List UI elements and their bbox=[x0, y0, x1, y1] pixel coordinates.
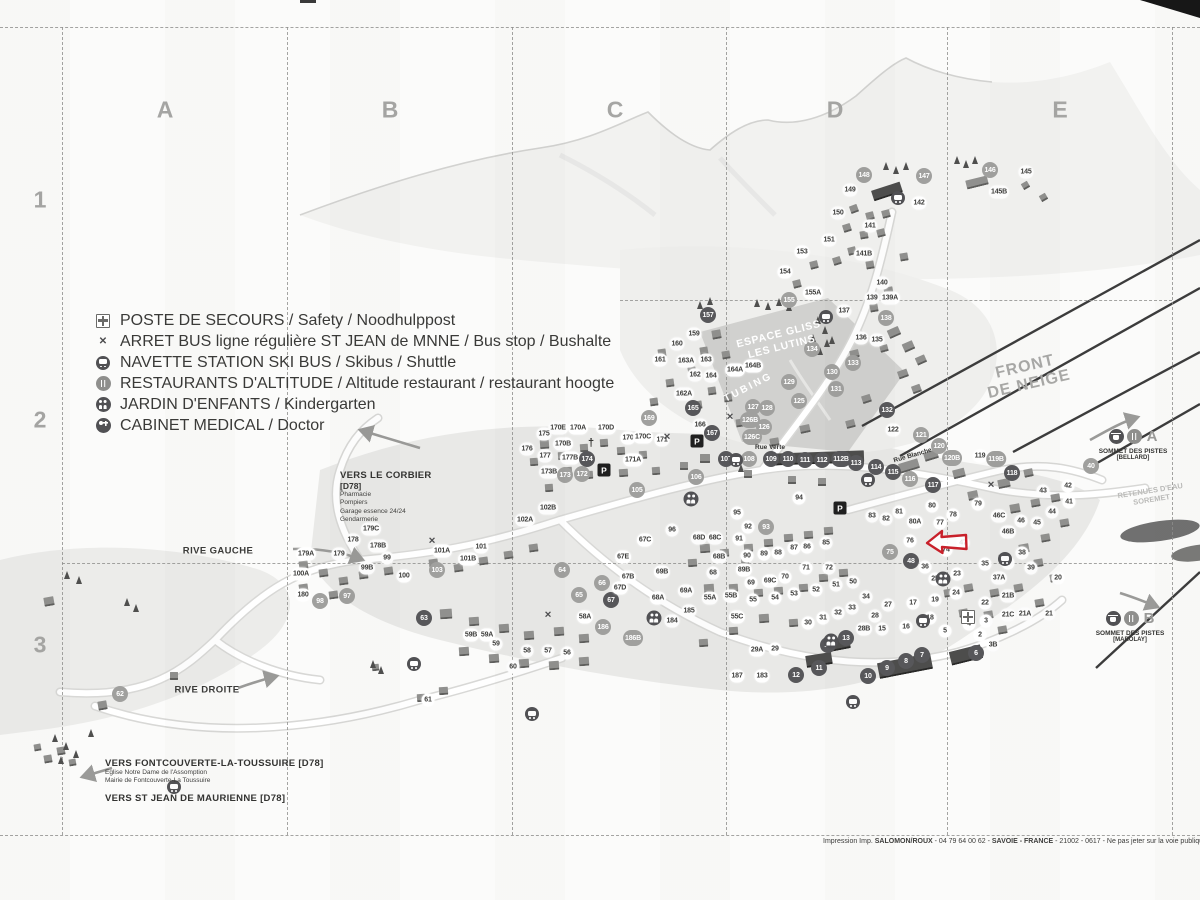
print-imprint: Impression Imp. SALOMON/ROUX - 04 79 64 … bbox=[823, 838, 1200, 845]
highlight-arrow-layer bbox=[0, 0, 1200, 900]
red-highlight-arrow bbox=[927, 531, 967, 553]
bus-icon bbox=[96, 356, 110, 370]
imprint-text: - 04 79 64 00 62 - bbox=[933, 838, 992, 845]
x-icon: ✕ bbox=[99, 336, 107, 347]
legend-bus-icon bbox=[95, 356, 111, 370]
legend-label: CABINET MEDICAL / Doctor bbox=[120, 417, 325, 435]
legend-rest-icon bbox=[95, 376, 111, 391]
legend-label: NAVETTE STATION SKI BUS / Skibus / Shutt… bbox=[120, 354, 456, 372]
imprint-text: - 21002 - 0617 - Ne pas jeter sur la voi… bbox=[1053, 838, 1200, 845]
legend-med-icon bbox=[95, 418, 111, 433]
legend-label: JARDIN D'ENFANTS / Kindergarten bbox=[120, 396, 376, 414]
legend-item: RESTAURANTS D'ALTITUDE / Altitude restau… bbox=[95, 373, 614, 394]
legend-kid-icon bbox=[95, 397, 111, 412]
imprint-text: Impression Imp. bbox=[823, 838, 875, 845]
legend-label: RESTAURANTS D'ALTITUDE / Altitude restau… bbox=[120, 375, 614, 393]
legend-aid-icon bbox=[95, 314, 111, 328]
legend-label: POSTE DE SECOURS / Safety / Noodhulppost bbox=[120, 312, 455, 330]
imprint-text: SALOMON/ROUX bbox=[875, 838, 933, 845]
legend-item: POSTE DE SECOURS / Safety / Noodhulppost bbox=[95, 310, 614, 331]
legend-item: NAVETTE STATION SKI BUS / Skibus / Shutt… bbox=[95, 352, 614, 373]
legend-label: ARRET BUS ligne régulière ST JEAN de MNN… bbox=[120, 333, 611, 351]
ski-village-map-scan: ABCDE123 149148147146145145B142150141151… bbox=[0, 0, 1200, 900]
med-icon bbox=[96, 418, 111, 433]
map-legend: POSTE DE SECOURS / Safety / Noodhulppost… bbox=[95, 310, 614, 436]
legend-item: CABINET MEDICAL / Doctor bbox=[95, 415, 614, 436]
rest-icon bbox=[96, 376, 111, 391]
imprint-text: SAVOIE - FRANCE bbox=[992, 838, 1053, 845]
legend-item: JARDIN D'ENFANTS / Kindergarten bbox=[95, 394, 614, 415]
kid-icon bbox=[96, 397, 111, 412]
aid-icon bbox=[96, 314, 110, 328]
legend-item: ✕ARRET BUS ligne régulière ST JEAN de MN… bbox=[95, 331, 614, 352]
legend-x-icon: ✕ bbox=[95, 336, 111, 347]
